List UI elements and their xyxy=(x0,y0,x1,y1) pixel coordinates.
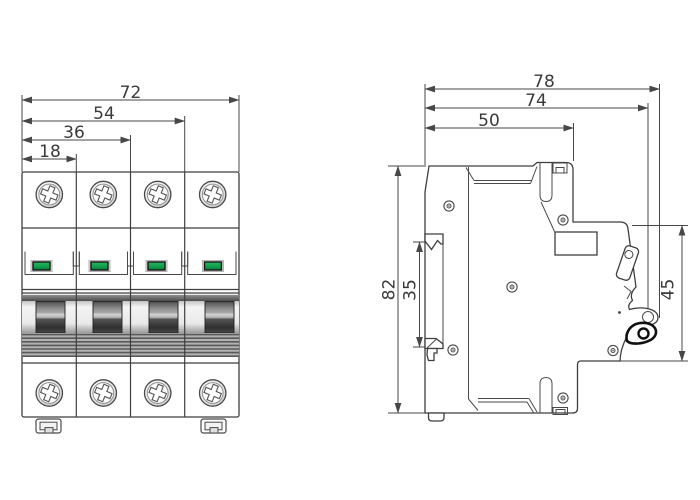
rivet xyxy=(558,215,568,225)
dim-label-50: 50 xyxy=(478,111,500,131)
dim-label-74: 74 xyxy=(525,91,547,111)
toggle-handle xyxy=(205,302,234,334)
rivet xyxy=(507,282,517,292)
terminal-screw-bottom-3 xyxy=(145,380,171,406)
pivot-dot xyxy=(618,311,621,314)
terminal-screw-top-4 xyxy=(200,181,226,207)
dim-label-82: 82 xyxy=(380,279,400,301)
terminal-screw-bottom-2 xyxy=(90,380,116,406)
dim-label-78: 78 xyxy=(533,72,555,92)
terminal-screw-top-2 xyxy=(90,181,116,207)
dim-label-54: 54 xyxy=(93,104,115,124)
toggle-handle xyxy=(93,302,122,334)
rivet xyxy=(558,393,568,403)
terminal-screw-top-1 xyxy=(36,181,62,207)
status-indicator-window xyxy=(146,261,167,272)
terminal-screw-bottom-1 xyxy=(36,380,62,406)
toggle-handle xyxy=(36,302,65,334)
lockout-tab xyxy=(626,323,656,344)
front-view-body xyxy=(22,172,239,433)
din-rail-clip-left xyxy=(36,419,61,433)
dim-label-72: 72 xyxy=(120,83,142,103)
mcb-outline-drawing: 72 54 36 18 xyxy=(0,0,700,500)
dim-label-36: 36 xyxy=(63,123,85,143)
dim-label-35: 35 xyxy=(401,279,421,301)
rivet xyxy=(608,345,618,355)
terminal-screw-bottom-4 xyxy=(200,380,226,406)
status-indicator-window xyxy=(31,261,52,272)
status-indicator-window xyxy=(89,261,110,272)
terminal-screw-top-3 xyxy=(145,181,171,207)
status-indicator-window xyxy=(203,261,224,272)
side-window-recess xyxy=(555,232,597,255)
rivet xyxy=(444,201,454,211)
front-view-dimensions: 72 54 36 18 xyxy=(22,83,239,172)
toggle-handle xyxy=(149,302,178,334)
bottom-foot-tab xyxy=(429,413,445,421)
front-view: 72 54 36 18 xyxy=(22,83,239,433)
rivet xyxy=(448,345,458,355)
technical-drawing-canvas: 72 54 36 18 xyxy=(0,0,700,500)
din-rail-clip-right xyxy=(201,419,226,433)
dim-label-45: 45 xyxy=(659,279,679,301)
dim-label-18: 18 xyxy=(39,142,61,162)
side-view: 78 74 50 82 35 45 xyxy=(380,72,689,421)
